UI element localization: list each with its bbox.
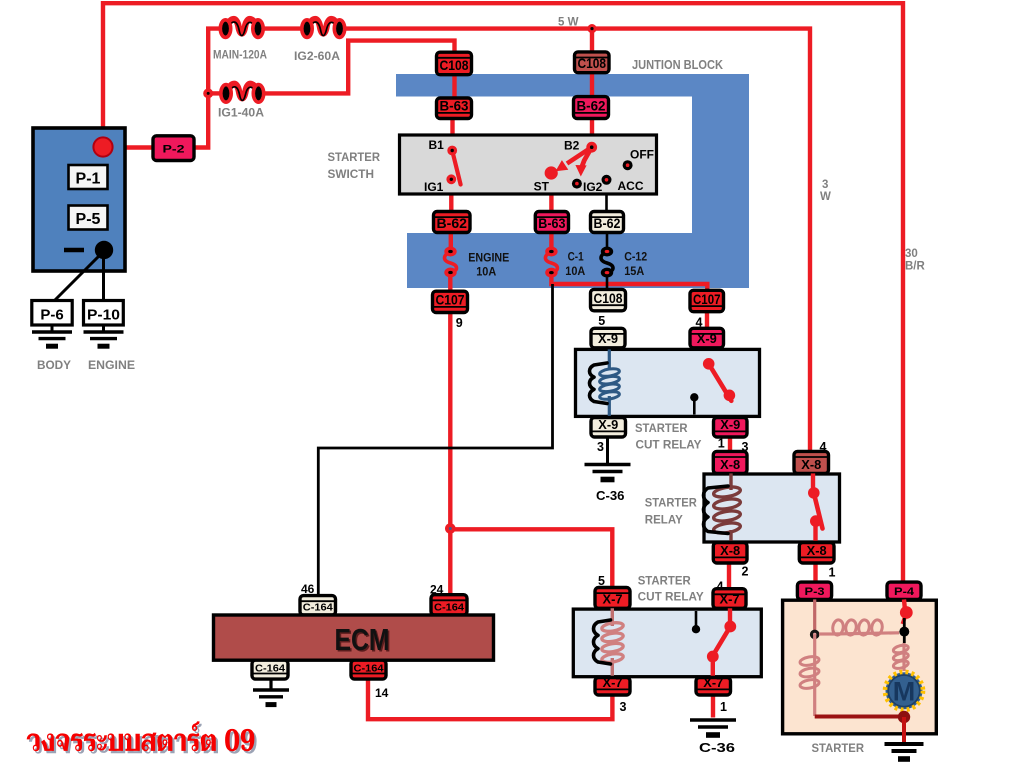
svg-text:OFF: OFF [630, 148, 654, 162]
svg-text:3: 3 [620, 700, 627, 714]
svg-text:ENGINE: ENGINE [468, 251, 509, 265]
svg-text:P-1: P-1 [76, 171, 101, 188]
svg-text:C108: C108 [578, 55, 607, 71]
svg-text:JUNTION BLOCK: JUNTION BLOCK [632, 57, 724, 72]
svg-text:30: 30 [905, 248, 918, 260]
svg-text:C-1: C-1 [568, 250, 584, 264]
svg-text:RELAY: RELAY [645, 515, 683, 527]
svg-text:B-63: B-63 [538, 215, 565, 231]
svg-text:C-36: C-36 [596, 488, 625, 503]
svg-text:C-164: C-164 [434, 601, 464, 613]
svg-text:9: 9 [456, 316, 463, 330]
svg-text:10A: 10A [476, 265, 496, 279]
svg-text:STARTER: STARTER [328, 152, 381, 164]
svg-text:P-5: P-5 [76, 211, 101, 228]
svg-text:2: 2 [742, 565, 749, 579]
svg-text:IG1: IG1 [424, 180, 444, 194]
svg-text:C107: C107 [693, 291, 721, 307]
svg-text:C-36: C-36 [699, 740, 735, 755]
svg-text:CUT RELAY: CUT RELAY [638, 592, 704, 604]
svg-text:X-7: X-7 [720, 592, 740, 607]
svg-text:C107: C107 [436, 292, 465, 308]
svg-text:1: 1 [718, 437, 725, 451]
svg-text:STARTER: STARTER [812, 741, 865, 755]
svg-text:15A: 15A [624, 264, 644, 278]
svg-text:M: M [893, 677, 916, 707]
svg-text:STARTER: STARTER [645, 498, 698, 510]
svg-text:BODY: BODY [37, 358, 71, 372]
svg-text:X-9: X-9 [720, 417, 740, 432]
svg-text:X-8: X-8 [720, 457, 740, 472]
svg-text:ENGINE: ENGINE [88, 358, 135, 372]
svg-text:B1: B1 [429, 138, 445, 152]
svg-text:5 W: 5 W [558, 17, 579, 29]
svg-text:W: W [820, 191, 831, 203]
svg-text:P-6: P-6 [40, 307, 63, 324]
svg-text:IG1-40A: IG1-40A [218, 108, 264, 120]
svg-text:P-4: P-4 [894, 586, 915, 598]
svg-text:STARTER: STARTER [638, 576, 692, 588]
svg-text:IG2: IG2 [583, 180, 603, 194]
svg-text:ST: ST [534, 180, 550, 194]
svg-text:B-63: B-63 [440, 98, 469, 114]
svg-text:C-12: C-12 [624, 250, 647, 264]
svg-text:C108: C108 [594, 290, 623, 306]
svg-text:P-2: P-2 [163, 143, 185, 155]
svg-text:X-9: X-9 [697, 331, 717, 346]
svg-text:C-164: C-164 [354, 662, 384, 674]
svg-text:X-8: X-8 [720, 543, 740, 558]
svg-text:X-7: X-7 [603, 592, 623, 607]
svg-text:IG2-60A: IG2-60A [294, 51, 340, 63]
svg-text:P-3: P-3 [805, 586, 825, 598]
svg-text:B-62: B-62 [437, 215, 468, 231]
svg-text:X-8: X-8 [801, 457, 821, 472]
svg-text:SWICTH: SWICTH [328, 169, 375, 181]
svg-text:B2: B2 [564, 138, 580, 152]
svg-text:X-9: X-9 [598, 417, 618, 432]
svg-text:X-8: X-8 [807, 543, 827, 558]
svg-text:C-164: C-164 [255, 662, 285, 674]
svg-text:MAIN-120A: MAIN-120A [213, 50, 267, 62]
svg-text:X-7: X-7 [603, 675, 623, 690]
svg-text:X-7: X-7 [703, 675, 723, 690]
svg-text:B-62: B-62 [594, 215, 621, 231]
svg-text:ECM: ECM [335, 622, 390, 657]
svg-text:P-10: P-10 [87, 307, 120, 324]
svg-text:ACC: ACC [618, 179, 644, 193]
svg-text:STARTER: STARTER [635, 423, 688, 435]
svg-text:C108: C108 [440, 57, 469, 73]
svg-text:C-164: C-164 [303, 601, 333, 613]
svg-text:14: 14 [375, 686, 389, 700]
svg-text:3: 3 [822, 179, 828, 191]
svg-text:5: 5 [598, 314, 605, 328]
svg-text:X-9: X-9 [598, 331, 618, 346]
svg-text:10A: 10A [565, 264, 585, 278]
svg-text:B/R: B/R [905, 261, 926, 273]
svg-text:CUT RELAY: CUT RELAY [636, 440, 702, 452]
svg-text:3: 3 [597, 440, 604, 454]
svg-text:1: 1 [720, 700, 727, 714]
svg-text:1: 1 [829, 566, 836, 580]
svg-text:B-62: B-62 [577, 98, 606, 114]
